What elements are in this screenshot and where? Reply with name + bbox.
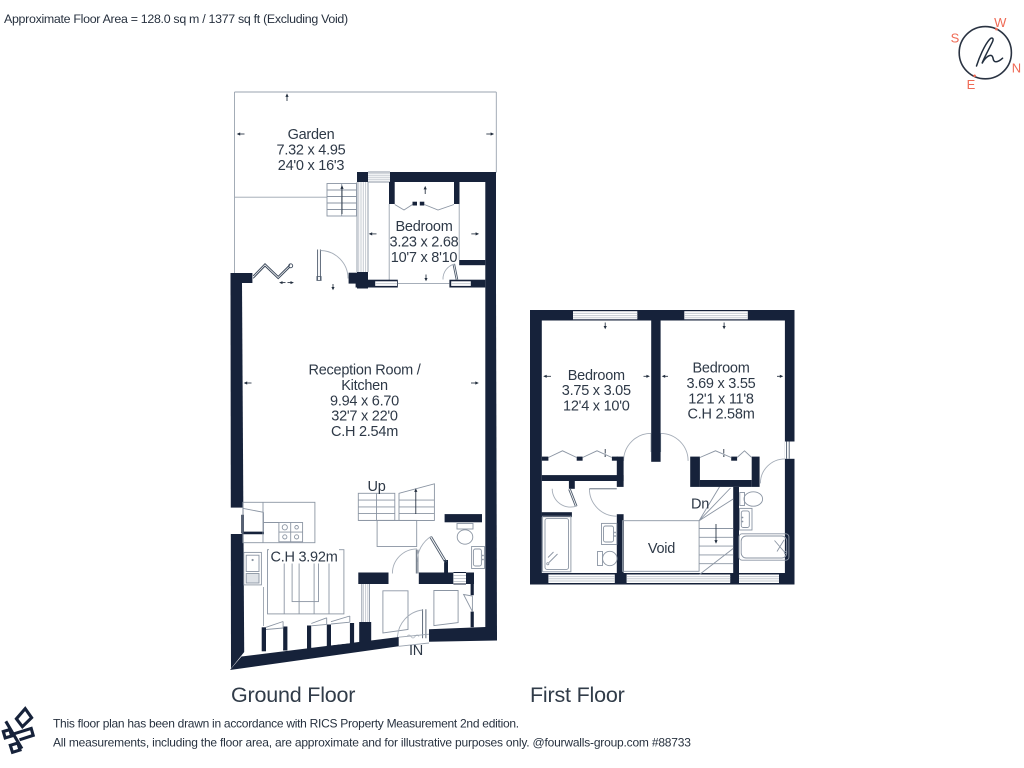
svg-text:Bedroom: Bedroom	[395, 219, 452, 235]
svg-text:32'7 x 22'0: 32'7 x 22'0	[331, 409, 398, 425]
svg-text:All measurements, including th: All measurements, including the floor ar…	[53, 735, 691, 749]
svg-text:12'1 x 11'8: 12'1 x 11'8	[688, 391, 754, 407]
svg-text:Bedroom: Bedroom	[568, 368, 625, 384]
svg-text:3.69 x 3.55: 3.69 x 3.55	[687, 376, 756, 392]
svg-text:3.23 x 2.68: 3.23 x 2.68	[390, 235, 459, 251]
svg-text:E: E	[967, 77, 976, 92]
svg-text:Kitchen: Kitchen	[341, 378, 388, 394]
svg-text:W: W	[994, 15, 1007, 30]
svg-text:7.32 x 4.95: 7.32 x 4.95	[277, 143, 346, 159]
svg-text:Void: Void	[648, 541, 675, 557]
svg-text:IN: IN	[409, 643, 423, 659]
svg-text:This floor plan has been drawn: This floor plan has been drawn in accord…	[53, 716, 519, 730]
svg-text:C.H 2.54m: C.H 2.54m	[331, 424, 398, 440]
svg-text:Approximate Floor Area = 128.0: Approximate Floor Area = 128.0 sq m / 13…	[4, 12, 348, 26]
svg-text:Up: Up	[367, 479, 385, 495]
svg-text:Reception Room /: Reception Room /	[308, 363, 421, 379]
svg-text:10'7 x 8'10: 10'7 x 8'10	[391, 250, 458, 266]
svg-text:C.H 3.92m: C.H 3.92m	[270, 549, 337, 565]
svg-text:Garden: Garden	[288, 127, 335, 143]
svg-text:9.94 x 6.70: 9.94 x 6.70	[330, 393, 399, 409]
svg-text:Bedroom: Bedroom	[692, 361, 749, 377]
svg-text:C.H 2.58m: C.H 2.58m	[687, 407, 754, 423]
svg-text:24'0 x 16'3: 24'0 x 16'3	[278, 158, 345, 174]
svg-text:S: S	[951, 30, 960, 45]
svg-text:Dn: Dn	[691, 497, 709, 513]
svg-text:3.75 x 3.05: 3.75 x 3.05	[562, 383, 631, 399]
svg-text:Ground Floor: Ground Floor	[231, 683, 355, 707]
svg-text:12'4 x 10'0: 12'4 x 10'0	[563, 398, 630, 414]
svg-text:First Floor: First Floor	[530, 683, 625, 707]
svg-text:N: N	[1012, 60, 1021, 75]
